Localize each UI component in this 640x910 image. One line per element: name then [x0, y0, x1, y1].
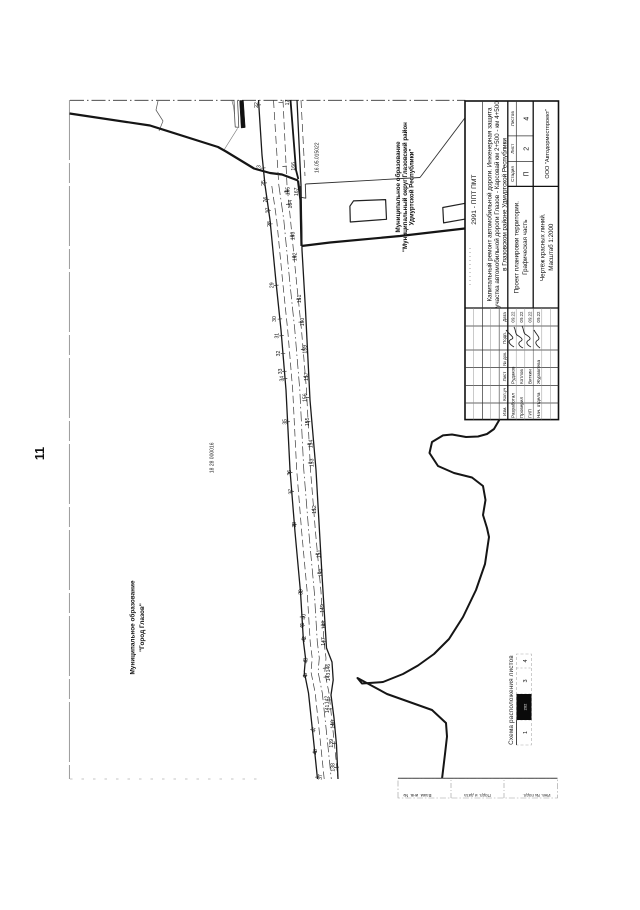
svg-text:41: 41	[300, 623, 306, 629]
svg-text:09.22: 09.22	[536, 311, 541, 323]
svg-text:35: 35	[283, 419, 289, 425]
svg-text:16.05.015022: 16.05.015022	[315, 142, 321, 173]
svg-text:Лист: Лист	[502, 372, 507, 382]
svg-text:139: 139	[329, 739, 335, 748]
svg-text:154: 154	[308, 439, 314, 448]
svg-text:25: 25	[261, 180, 267, 186]
svg-text:141: 141	[325, 704, 331, 713]
svg-text:09.22: 09.22	[511, 311, 516, 323]
svg-text:П: П	[524, 171, 531, 176]
svg-text:162: 162	[293, 252, 299, 261]
svg-text:37: 37	[289, 489, 295, 495]
svg-text:11: 11	[33, 447, 47, 460]
svg-text:202: 202	[522, 703, 527, 710]
svg-text:Кол.уч: Кол.уч	[502, 388, 507, 401]
svg-text:153: 153	[309, 458, 315, 467]
svg-text:163: 163	[290, 231, 296, 240]
svg-text:2: 2	[524, 147, 531, 151]
svg-text:Стадия: Стадия	[510, 166, 515, 182]
svg-text:138: 138	[330, 763, 336, 772]
svg-text:в Глазовском районе Удмуртской: в Глазовском районе Удмуртской Республик…	[501, 138, 509, 271]
svg-text:Изм.: Изм.	[502, 407, 507, 416]
svg-text:09.22: 09.22	[528, 311, 533, 323]
svg-text:160: 160	[300, 318, 306, 327]
svg-text:Взам. инв. №: Взам. инв. №	[403, 793, 431, 798]
svg-text:Подп. и дата: Подп. и дата	[464, 793, 491, 798]
svg-text:164: 164	[288, 200, 294, 209]
svg-text:38: 38	[292, 522, 298, 528]
svg-text:151: 151	[317, 549, 323, 558]
svg-text:26: 26	[263, 197, 269, 203]
svg-text:Муниципальное образование: Муниципальное образование	[129, 580, 137, 675]
svg-text:142: 142	[324, 696, 330, 705]
svg-text:48: 48	[313, 749, 319, 755]
svg-text:Журавлева: Журавлева	[536, 359, 541, 384]
svg-text:Дата: Дата	[502, 312, 507, 322]
svg-text:Проект планировки территории.: Проект планировки территории.	[514, 201, 521, 294]
svg-text:4: 4	[523, 659, 529, 662]
svg-text:ООО "Автодорместпроект": ООО "Автодорместпроект"	[545, 109, 551, 179]
svg-text:18 28 000016: 18 28 000016	[209, 442, 215, 473]
svg-text:Котлов: Котлов	[519, 369, 524, 384]
svg-text:4: 4	[524, 117, 531, 121]
svg-text:159: 159	[302, 345, 308, 354]
svg-text:Капитальный ремонт автомобильн: Капитальный ремонт автомобильной дороги.…	[486, 107, 494, 301]
svg-text:167: 167	[294, 187, 300, 196]
svg-text:"Город Глазов": "Город Глазов"	[139, 603, 146, 652]
svg-text:23: 23	[256, 165, 262, 171]
svg-text:43: 43	[303, 658, 309, 664]
svg-text:17: 17	[285, 100, 291, 106]
svg-text:148: 148	[322, 621, 328, 630]
svg-text:Нач. отдела: Нач. отдела	[536, 392, 541, 418]
svg-text:2991 - ППТ ПМТ: 2991 - ППТ ПМТ	[471, 175, 478, 225]
svg-text:22: 22	[254, 102, 260, 108]
svg-text:Листов: Листов	[510, 111, 515, 126]
svg-text:3: 3	[523, 679, 529, 682]
svg-text:1: 1	[523, 731, 529, 734]
svg-text:32: 32	[276, 351, 282, 357]
svg-text:№ док.: № док.	[502, 352, 507, 366]
svg-text:40: 40	[301, 614, 307, 620]
svg-text:28: 28	[267, 221, 273, 227]
svg-text:161: 161	[297, 294, 303, 303]
svg-text:Масштаб 1:2000: Масштаб 1:2000	[548, 223, 555, 271]
svg-text:Графическая часть: Графическая часть	[522, 220, 529, 275]
svg-text:34: 34	[279, 376, 285, 382]
svg-text:166: 166	[291, 162, 297, 171]
svg-text:ГИП: ГИП	[528, 409, 533, 418]
svg-text:165: 165	[286, 187, 292, 196]
svg-text:Чертёж красных линий.: Чертёж красных линий.	[540, 213, 547, 281]
svg-text:45: 45	[303, 673, 309, 679]
svg-text:Инв. № подл.: Инв. № подл.	[522, 793, 550, 798]
svg-text:152: 152	[312, 505, 318, 514]
svg-text:27: 27	[265, 208, 271, 214]
svg-text:147: 147	[321, 637, 327, 646]
svg-text:47: 47	[311, 727, 317, 733]
svg-text:143: 143	[326, 673, 332, 682]
svg-text:Подп.: Подп.	[502, 332, 507, 344]
svg-text:31: 31	[274, 333, 280, 339]
svg-text:156: 156	[302, 393, 308, 402]
svg-text:146: 146	[326, 664, 332, 673]
svg-text:30: 30	[272, 316, 278, 322]
svg-text:Схема расположения листов: Схема расположения листов	[508, 655, 515, 745]
svg-text:155: 155	[305, 417, 311, 426]
svg-text:Разработал: Разработал	[511, 393, 516, 418]
svg-text:Вяткин: Вяткин	[528, 369, 533, 384]
svg-text:участка автомобильной дороги Г: участка автомобильной дороги Глазов - Ка…	[493, 101, 501, 308]
svg-text:149: 149	[320, 604, 326, 613]
svg-text:09.22: 09.22	[519, 311, 524, 323]
svg-text:157: 157	[304, 372, 310, 381]
svg-text:Лист: Лист	[510, 143, 515, 154]
svg-text:150: 150	[319, 568, 325, 577]
svg-text:42: 42	[302, 636, 308, 642]
svg-text:37: 37	[318, 774, 324, 780]
svg-text:29: 29	[270, 282, 276, 288]
svg-text:39: 39	[298, 589, 304, 595]
svg-text:33: 33	[278, 368, 284, 374]
svg-text:Проверил: Проверил	[519, 397, 524, 418]
svg-text:36: 36	[287, 470, 293, 476]
svg-text:140: 140	[330, 720, 336, 729]
svg-text:Рудаков: Рудаков	[511, 366, 516, 384]
svg-text:Удмуртской Республики": Удмуртской Республики"	[409, 149, 416, 226]
